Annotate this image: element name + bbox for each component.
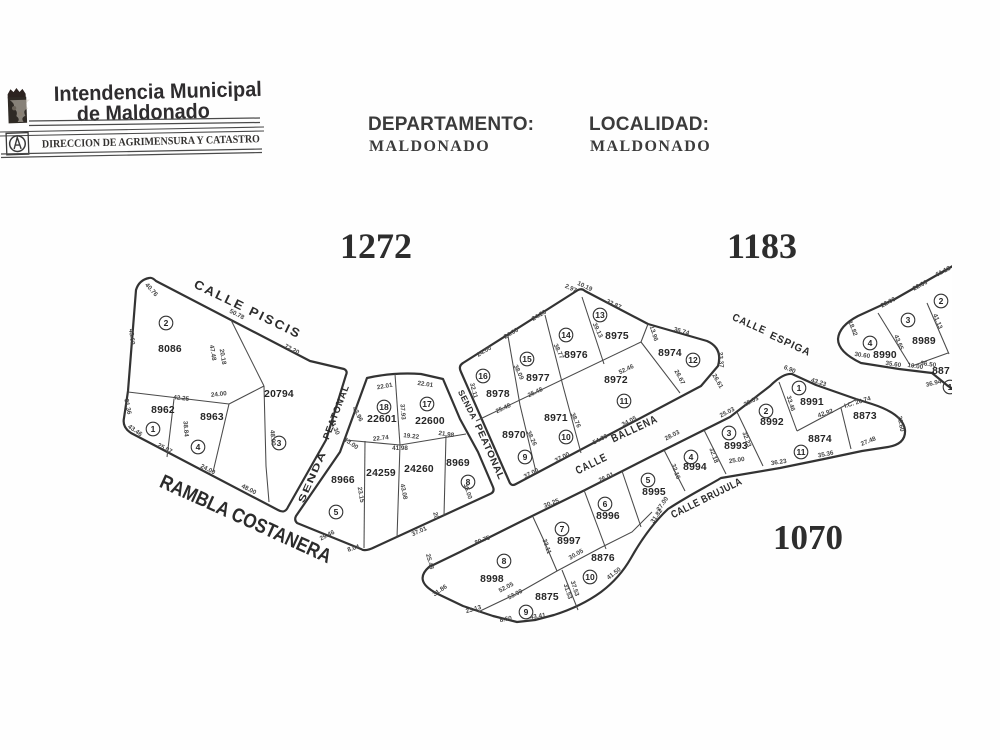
svg-text:2: 2 (164, 318, 169, 328)
svg-text:MALDONADO: MALDONADO (369, 138, 490, 155)
svg-text:17: 17 (422, 399, 432, 409)
svg-text:8086: 8086 (158, 344, 182, 355)
svg-text:4: 4 (689, 452, 694, 462)
svg-text:23.37: 23.37 (716, 352, 724, 369)
svg-text:41.98: 41.98 (392, 445, 408, 452)
svg-text:8972: 8972 (604, 375, 628, 386)
svg-text:4: 4 (196, 442, 201, 452)
svg-text:8996: 8996 (596, 511, 620, 522)
svg-text:8977: 8977 (526, 373, 550, 384)
svg-text:MALDONADO: MALDONADO (590, 138, 711, 155)
svg-text:5: 5 (646, 475, 651, 485)
svg-text:10: 10 (585, 572, 595, 582)
svg-text:8976: 8976 (564, 350, 588, 361)
svg-text:3: 3 (727, 428, 732, 438)
svg-text:9: 9 (523, 452, 528, 462)
svg-text:9: 9 (524, 607, 529, 617)
svg-text:LOCALIDAD:: LOCALIDAD: (589, 114, 709, 135)
svg-text:1272: 1272 (340, 226, 412, 266)
svg-text:37.93: 37.93 (398, 404, 406, 421)
svg-text:8991: 8991 (800, 397, 824, 408)
svg-text:8873: 8873 (853, 411, 877, 422)
svg-text:24259: 24259 (366, 468, 396, 479)
svg-text:8971: 8971 (544, 413, 568, 424)
svg-text:3: 3 (906, 315, 911, 325)
svg-text:48.00: 48.00 (268, 430, 276, 447)
svg-text:8975: 8975 (605, 331, 629, 342)
svg-text:DEPARTAMENTO:: DEPARTAMENTO: (368, 114, 534, 135)
svg-text:8875: 8875 (535, 592, 559, 603)
svg-text:5: 5 (334, 507, 339, 517)
svg-text:10: 10 (561, 432, 571, 442)
svg-text:8989: 8989 (912, 336, 936, 347)
svg-text:11: 11 (620, 396, 629, 406)
svg-text:8876: 8876 (591, 553, 615, 564)
svg-text:6: 6 (603, 499, 608, 509)
svg-text:1: 1 (797, 383, 802, 393)
svg-text:8992: 8992 (760, 417, 784, 428)
svg-text:8978: 8978 (486, 389, 510, 400)
svg-text:8974: 8974 (658, 348, 682, 359)
svg-text:8: 8 (502, 556, 507, 566)
svg-text:24260: 24260 (404, 464, 434, 475)
svg-text:8969: 8969 (446, 458, 470, 469)
svg-text:14: 14 (561, 330, 571, 340)
svg-text:8966: 8966 (331, 475, 355, 486)
svg-text:1: 1 (151, 424, 156, 434)
svg-text:2: 2 (939, 296, 944, 306)
svg-text:2: 2 (764, 406, 769, 416)
svg-text:8963: 8963 (200, 412, 224, 423)
svg-text:de Maldonado: de Maldonado (77, 100, 211, 126)
svg-text:22600: 22600 (415, 416, 445, 427)
svg-text:7: 7 (560, 524, 565, 534)
svg-text:8994: 8994 (683, 462, 707, 473)
svg-text:18: 18 (379, 402, 389, 412)
svg-text:11: 11 (797, 447, 806, 457)
svg-text:12: 12 (688, 355, 698, 365)
svg-text:1070: 1070 (773, 518, 843, 557)
svg-text:13: 13 (595, 310, 605, 320)
svg-text:8995: 8995 (642, 487, 666, 498)
svg-text:8997: 8997 (557, 536, 581, 547)
svg-text:8874: 8874 (808, 434, 832, 445)
svg-text:1: 1 (948, 382, 953, 392)
svg-text:1183: 1183 (727, 226, 797, 266)
svg-text:38.84: 38.84 (181, 421, 189, 438)
svg-text:8998: 8998 (480, 574, 504, 585)
svg-text:22601: 22601 (367, 414, 397, 425)
svg-text:4: 4 (868, 338, 873, 348)
svg-text:20794: 20794 (264, 389, 294, 400)
svg-text:8970: 8970 (502, 430, 526, 441)
svg-text:15: 15 (522, 354, 532, 364)
svg-text:8962: 8962 (151, 405, 175, 416)
svg-text:16: 16 (478, 371, 488, 381)
